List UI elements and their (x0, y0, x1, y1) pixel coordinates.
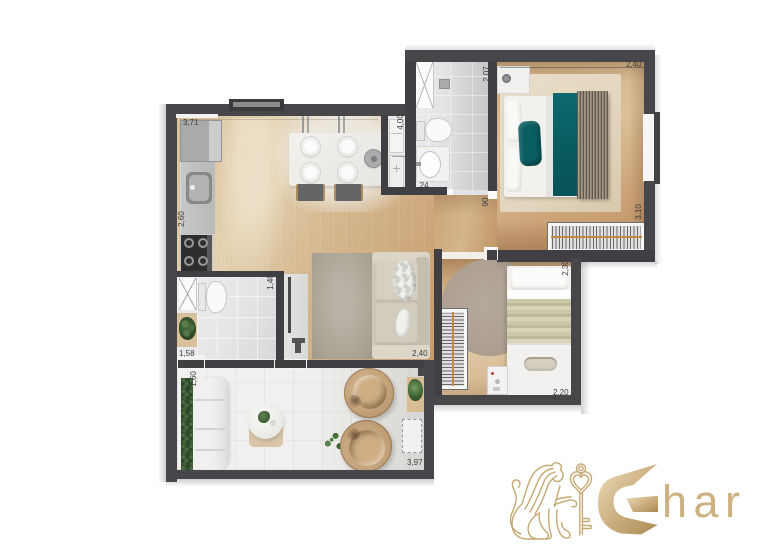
svg-text:har: har (662, 476, 747, 527)
